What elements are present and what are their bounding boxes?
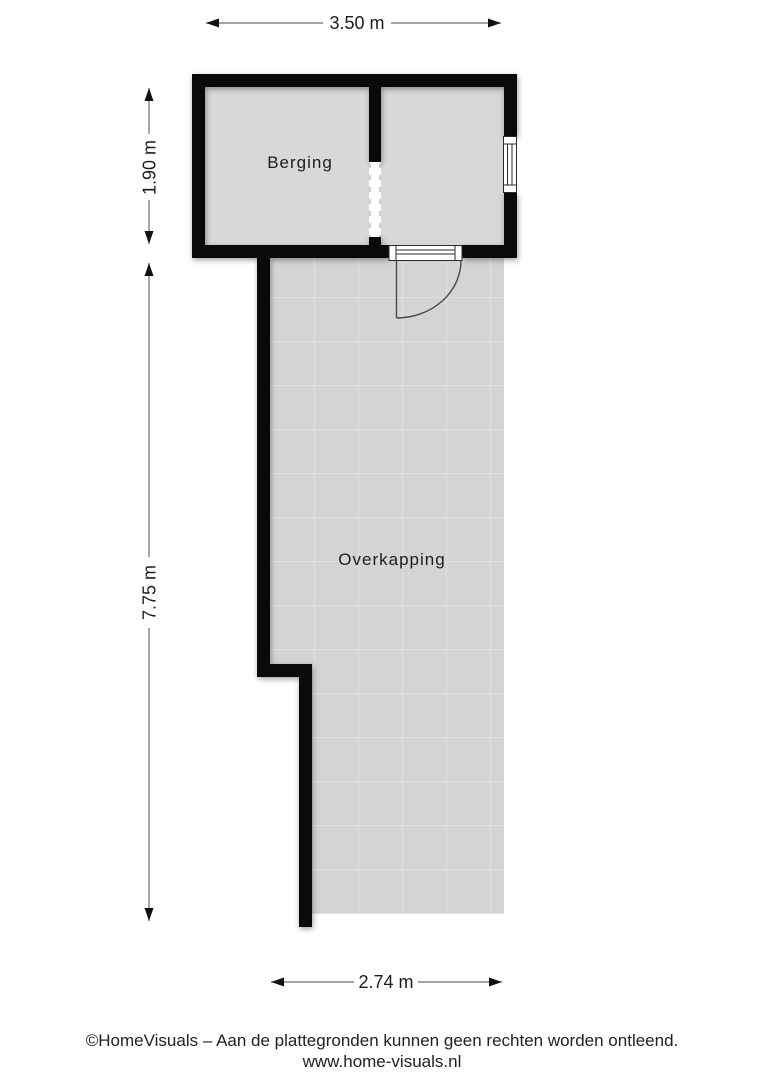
room-label-overkapping: Overkapping: [302, 550, 482, 570]
dimension-label-left-lower: 7.75 m: [140, 560, 161, 626]
wall-bottom-right: [462, 245, 517, 258]
wall-divider-lower: [369, 237, 381, 245]
dimension-label-left-upper: 1.90 m: [140, 135, 161, 201]
footer-url: www.home-visuals.nl: [0, 1052, 764, 1072]
footer-copyright: ©HomeVisuals – Aan de plattegronden kunn…: [0, 1031, 764, 1051]
dimension-label-bottom: 2.74 m: [353, 972, 419, 993]
wall-bottom-left: [192, 245, 389, 258]
wall-divider-upper: [369, 87, 381, 162]
wall-right-upper: [504, 74, 517, 136]
wall-left: [192, 74, 205, 258]
room-label-berging: Berging: [230, 153, 370, 173]
wall-top: [192, 74, 517, 87]
wall-overkapping-step: [257, 664, 312, 677]
dimension-label-top: 3.50 m: [324, 13, 390, 34]
wall-overkapping-lower: [299, 677, 312, 927]
wall-overkapping-left: [257, 258, 270, 664]
walls: [0, 0, 764, 1080]
floor-plan: Berging Overkapping 3.50 m 1.90 m 7.75 m…: [0, 0, 764, 1080]
